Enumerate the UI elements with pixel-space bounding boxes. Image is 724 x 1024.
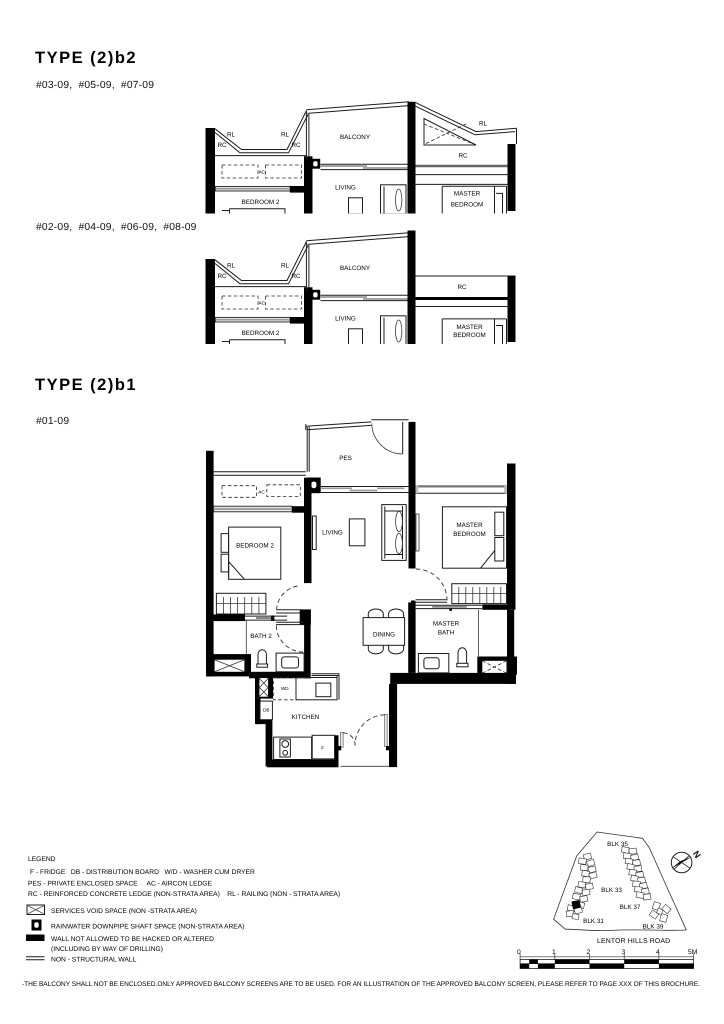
svg-text:PES: PES xyxy=(339,455,352,462)
svg-text:BLK 39: BLK 39 xyxy=(643,924,664,931)
svg-text:BEDROOM 2: BEDROOM 2 xyxy=(242,330,280,337)
svg-text:RL: RL xyxy=(479,121,488,128)
svg-text:PES - PRIVATE ENCLOSED SPACE: PES - PRIVATE ENCLOSED SPACE AC - AIRCON… xyxy=(28,881,212,888)
svg-text:BLK 37: BLK 37 xyxy=(620,904,641,911)
svg-text:BEDROOM 2: BEDROOM 2 xyxy=(242,199,280,206)
svg-text:F: F xyxy=(321,746,324,751)
svg-text:WD: WD xyxy=(281,686,289,691)
svg-text:BALCONY: BALCONY xyxy=(340,134,371,141)
svg-text:RC: RC xyxy=(457,284,467,291)
svg-text:3: 3 xyxy=(622,949,626,956)
svg-text:RC: RC xyxy=(291,273,301,280)
svg-text:MASTER: MASTER xyxy=(433,621,460,628)
svg-text:MASTER: MASTER xyxy=(456,324,483,331)
svg-text:1: 1 xyxy=(552,949,556,956)
svg-text:RL: RL xyxy=(227,132,236,139)
svg-text:BLK 35: BLK 35 xyxy=(607,841,628,848)
svg-text:RL: RL xyxy=(281,132,290,139)
svg-text:N: N xyxy=(691,849,703,860)
svg-text:F - FRIDGE DB - DISTRIBUTION: F - FRIDGE DB - DISTRIBUTION BOARD W/D -… xyxy=(30,869,255,876)
svg-text:LIVING: LIVING xyxy=(335,185,356,192)
svg-text:RAINWATER DOWNPIPE SHAFT SPACE: RAINWATER DOWNPIPE SHAFT SPACE (NON-STRA… xyxy=(51,924,244,931)
svg-text:LEGEND: LEGEND xyxy=(28,856,56,863)
svg-text:KITCHEN: KITCHEN xyxy=(292,714,320,721)
svg-text:BEDROOM 2: BEDROOM 2 xyxy=(236,543,274,550)
svg-text:RC: RC xyxy=(291,142,301,149)
svg-text:2: 2 xyxy=(587,949,591,956)
svg-text:WALL NOT ALLOWED TO BE HACKED: WALL NOT ALLOWED TO BE HACKED OR ALTERED xyxy=(51,936,214,943)
svg-text:BEDROOM: BEDROOM xyxy=(453,531,486,538)
svg-text:BEDROOM: BEDROOM xyxy=(453,332,486,339)
svg-text:RL: RL xyxy=(227,263,236,270)
svg-text:-THE BALCONY SHALL NOT BE ENCL: -THE BALCONY SHALL NOT BE ENCLOSED.ONLY … xyxy=(22,981,700,988)
svg-text:MASTER: MASTER xyxy=(454,191,481,198)
svg-text:RC - REINFORCED CONCRETE LEDGE: RC - REINFORCED CONCRETE LEDGE (NON-STRA… xyxy=(28,891,340,898)
svg-text:BATH 2: BATH 2 xyxy=(250,633,272,640)
svg-text:NON - STRUCTURAL WALL: NON - STRUCTURAL WALL xyxy=(51,957,137,964)
svg-text:RC: RC xyxy=(458,153,468,160)
svg-text:(INCLUDING BY WAY OF DRILLING): (INCLUDING BY WAY OF DRILLING) xyxy=(51,946,163,953)
svg-text:BLK 33: BLK 33 xyxy=(601,887,622,894)
svg-text:LENTOR HILLS ROAD: LENTOR HILLS ROAD xyxy=(597,938,670,945)
svg-text:AC: AC xyxy=(259,170,266,175)
svg-text:RC: RC xyxy=(217,273,227,280)
svg-text:AC: AC xyxy=(259,301,266,306)
svg-text:RC: RC xyxy=(217,142,227,149)
svg-text:BLK 31: BLK 31 xyxy=(583,918,604,925)
svg-text:LIVING: LIVING xyxy=(322,530,343,537)
svg-text:BEDROOM: BEDROOM xyxy=(451,202,484,209)
svg-text:BATH: BATH xyxy=(438,630,455,637)
svg-text:DINING: DINING xyxy=(373,631,395,638)
svg-text:5M: 5M xyxy=(688,949,698,956)
svg-text:AC: AC xyxy=(258,490,265,495)
svg-text:SERVICES VOID SPACE (NON -STRA: SERVICES VOID SPACE (NON -STRATA AREA) xyxy=(51,908,197,915)
svg-text:0: 0 xyxy=(517,949,521,956)
svg-text:RL: RL xyxy=(281,263,290,270)
svg-text:LIVING: LIVING xyxy=(335,316,356,323)
svg-text:MASTER: MASTER xyxy=(456,522,483,529)
svg-text:4: 4 xyxy=(656,949,660,956)
svg-text:BALCONY: BALCONY xyxy=(340,265,371,272)
svg-text:DB: DB xyxy=(263,708,269,713)
